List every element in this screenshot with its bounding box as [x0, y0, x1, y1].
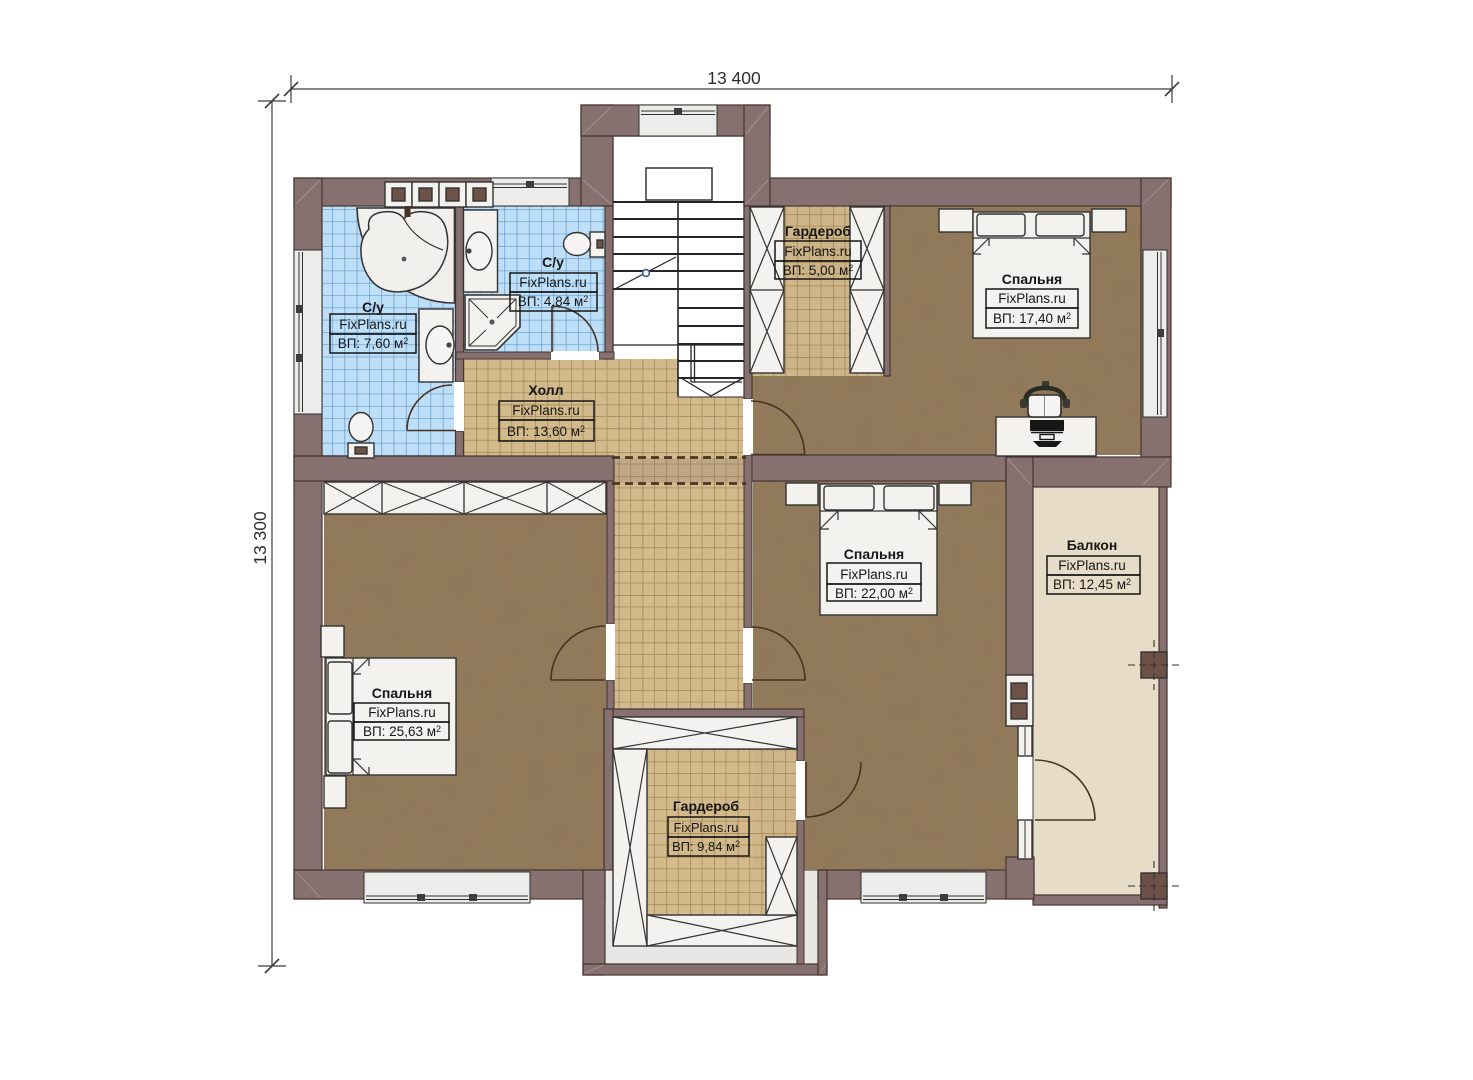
svg-text:ВП: 25,63 м2: ВП: 25,63 м2 — [363, 724, 441, 739]
svg-text:Спальня: Спальня — [1002, 271, 1062, 287]
svg-text:Спальня: Спальня — [372, 685, 432, 701]
svg-text:Спальня: Спальня — [844, 546, 904, 562]
svg-text:ВП: 12,45 м2: ВП: 12,45 м2 — [1053, 577, 1131, 592]
svg-text:FixPlans.ru: FixPlans.ru — [339, 317, 407, 332]
svg-text:FixPlans.ru: FixPlans.ru — [512, 403, 580, 418]
svg-text:ВП: 5,00 м2: ВП: 5,00 м2 — [783, 263, 854, 278]
svg-text:ВП: 7,60 м2: ВП: 7,60 м2 — [338, 336, 409, 351]
svg-text:13 400: 13 400 — [707, 68, 761, 88]
svg-text:ВП: 22,00 м2: ВП: 22,00 м2 — [835, 586, 913, 601]
svg-text:FixPlans.ru: FixPlans.ru — [1058, 558, 1126, 573]
svg-text:С/у: С/у — [362, 299, 384, 315]
svg-text:ВП: 13,60 м2: ВП: 13,60 м2 — [507, 424, 585, 439]
svg-text:ВП: 4,84 м2: ВП: 4,84 м2 — [518, 294, 589, 309]
svg-text:FixPlans.ru: FixPlans.ru — [840, 567, 908, 582]
svg-text:13 300: 13 300 — [250, 511, 270, 565]
svg-text:Гардероб: Гардероб — [673, 798, 740, 814]
svg-text:FixPlans.ru: FixPlans.ru — [673, 820, 738, 835]
svg-text:Балкон: Балкон — [1067, 537, 1118, 553]
svg-text:FixPlans.ru: FixPlans.ru — [784, 244, 852, 259]
svg-text:Гардероб: Гардероб — [785, 223, 852, 239]
svg-text:FixPlans.ru: FixPlans.ru — [368, 705, 436, 720]
svg-text:С/у: С/у — [542, 254, 564, 270]
svg-text:FixPlans.ru: FixPlans.ru — [519, 275, 587, 290]
svg-text:FixPlans.ru: FixPlans.ru — [998, 291, 1066, 306]
svg-text:Холл: Холл — [528, 382, 563, 398]
svg-text:ВП: 9,84 м2: ВП: 9,84 м2 — [672, 839, 740, 854]
svg-text:ВП: 17,40 м2: ВП: 17,40 м2 — [993, 311, 1071, 326]
